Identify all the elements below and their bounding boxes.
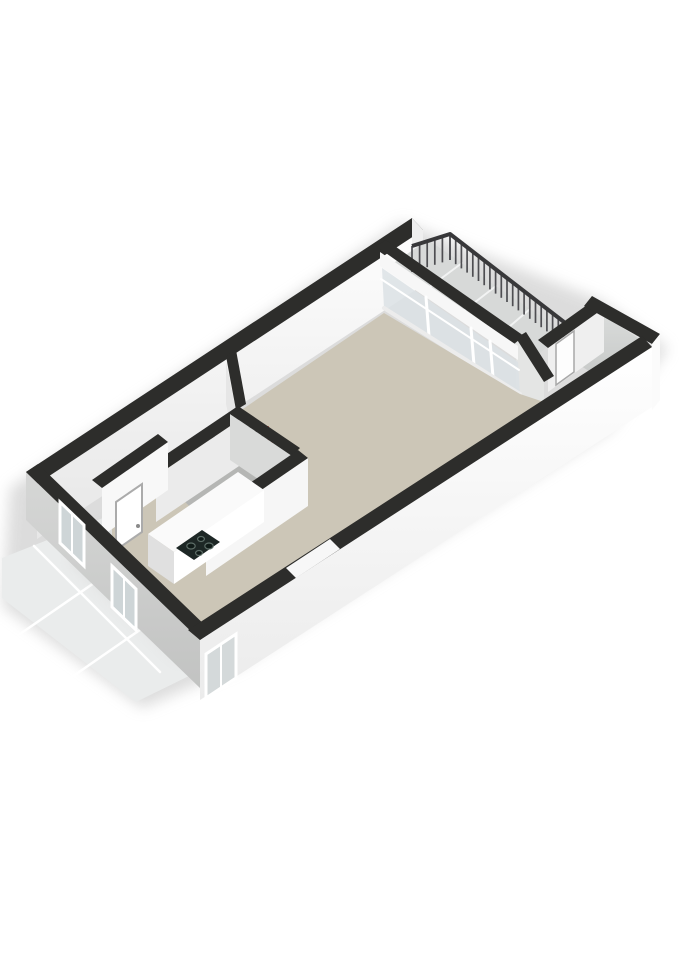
- floor-plan-image: [0, 0, 679, 960]
- cooktop-burner: [196, 551, 203, 556]
- floor-plan-svg: [0, 0, 679, 960]
- cooktop-burner: [198, 537, 205, 542]
- storage-exterior-face: [652, 334, 660, 410]
- cooktop-burner: [205, 543, 213, 549]
- front-door-handle: [136, 524, 140, 528]
- cooktop-burner: [187, 543, 195, 549]
